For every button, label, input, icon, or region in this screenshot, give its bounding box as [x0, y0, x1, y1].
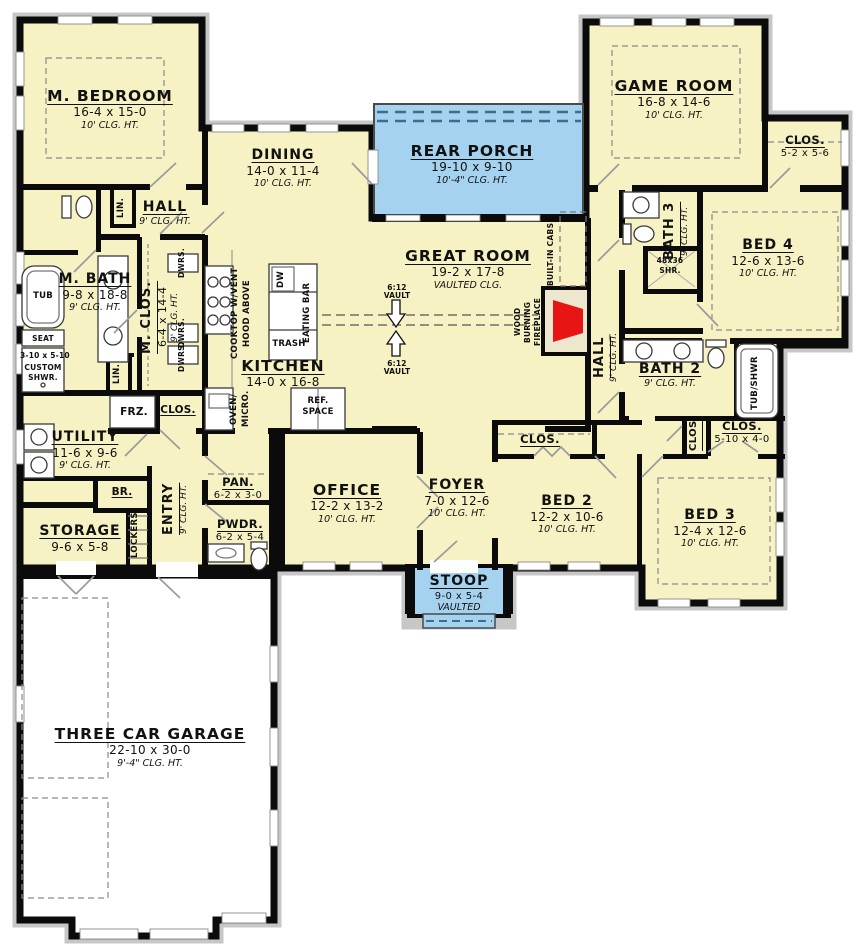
room-dims: 19-10 x 9-10 [392, 161, 552, 174]
room-dims: 5-2 x 5-6 [765, 148, 845, 159]
fireplace-label-3: FIREPLACE [533, 284, 542, 360]
drawers-label-3: DWRS. [177, 342, 186, 372]
room-label-m-clos: M. CLOS. [139, 258, 154, 376]
room-dims: 22-10 x 30-0 [50, 744, 250, 757]
room-name: BED 2 [497, 494, 637, 510]
room-name: DINING [213, 148, 353, 164]
room-label-powder: PWDR. 6-2 x 5-4 [198, 518, 282, 543]
room-ceiling-entry: 9' CLG. HT. [179, 470, 189, 548]
room-label-bed4: BED 4 12-6 x 13-6 10' CLG. HT. [698, 238, 838, 280]
tub-label: TUB [28, 291, 58, 301]
room-ceiling-hall-bed: 9' CLG. HT. [609, 324, 619, 390]
room-label-clos-hall: CLOS. [688, 410, 699, 458]
room-name: CLOS. [502, 433, 578, 446]
oven-micro-label-2: MICRO. [241, 384, 251, 434]
broom-label: BR. [100, 486, 144, 498]
room-ceiling: 10' CLG. HT. [30, 121, 190, 132]
room-ceiling: 10' CLG. HT. [594, 111, 754, 122]
room-name: REAR PORCH [392, 143, 552, 160]
closet-label-utility: CLOS. [150, 404, 206, 416]
room-name: FOYER [387, 478, 527, 494]
builtin-cabs-label: BUILT-IN CABS [546, 214, 555, 294]
room-label-dining: DINING 14-0 x 11-4 10' CLG. HT. [213, 148, 353, 190]
room-label-m-bedroom: M. BEDROOM 16-4 x 15-0 10' CLG. HT. [30, 88, 190, 131]
room-label-hall-upper: HALL 9' CLG. HT. [118, 200, 212, 227]
room-dims: 6-2 x 5-4 [198, 532, 282, 543]
room-name: GAME ROOM [594, 78, 754, 95]
room-name: BED 3 [640, 508, 780, 524]
room-label-entry: ENTRY [161, 466, 176, 552]
room-dims: 12-6 x 13-6 [698, 255, 838, 268]
room-ceiling: 10' CLG. HT. [213, 179, 353, 190]
room-label-bed2: BED 2 12-2 x 10-6 10' CLG. HT. [497, 494, 637, 536]
room-label-clos-game: CLOS. 5-2 x 5-6 [765, 134, 845, 159]
room-label-stoop: STOOP 9-0 x 5-4 VAULTED [400, 574, 518, 613]
cooktop-label-2: HOOD ABOVE [242, 266, 252, 361]
room-dims: 5-10 x 4-0 [700, 434, 784, 445]
room-label-pantry: PAN. 6-2 x 3-0 [198, 476, 278, 501]
room-ceiling: 9' CLG. HT. [608, 379, 732, 390]
room-dims: 14-0 x 11-4 [213, 165, 353, 178]
dishwasher-label: DW [276, 268, 286, 290]
room-label-utility: UTILITY 11-6 x 9-6 9' CLG. HT. [25, 430, 145, 472]
room-dims: 11-6 x 9-6 [25, 447, 145, 460]
room-ceiling-bath3: 9' CLG. HT. [680, 198, 690, 264]
room-ceiling: 9' CLG. HT. [25, 461, 145, 472]
room-ceiling: 10'-4" CLG. HT. [392, 176, 552, 187]
room-dims: 16-8 x 14-6 [594, 96, 754, 109]
room-name: STORAGE [18, 524, 142, 540]
room-name: GREAT ROOM [383, 248, 553, 265]
lockers-label: LOCKERS [130, 508, 140, 563]
room-name: CLOS. [765, 134, 845, 147]
room-name: PAN. [198, 476, 278, 489]
room-dims: 9-6 x 5-8 [18, 541, 142, 554]
room-dims: 12-2 x 10-6 [497, 511, 637, 524]
room-name: STOOP [400, 574, 518, 590]
room-name: PWDR. [198, 518, 282, 531]
room-label-garage: THREE CAR GARAGE 22-10 x 30-0 9'-4" CLG.… [50, 726, 250, 769]
room-label-rear-porch: REAR PORCH 19-10 x 9-10 10'-4" CLG. HT. [392, 143, 552, 186]
room-name: HALL [118, 200, 212, 216]
shower-label-2: SHR. [644, 266, 696, 275]
room-ceiling: VAULTED [400, 603, 518, 614]
room-ceiling: 10' CLG. HT. [698, 269, 838, 280]
room-ceiling: 10' CLG. HT. [497, 525, 637, 536]
linen-label-mbath: LIN. [112, 357, 122, 391]
ref-space-label-1: REF. [295, 396, 341, 406]
room-label-bed3: BED 3 12-4 x 12-6 10' CLG. HT. [640, 508, 780, 550]
room-dims: 9-0 x 5-4 [400, 591, 518, 602]
vault-label-bottom-2: VAULT [380, 367, 414, 376]
custom-shower-dims: 3-10 x 5-10 [20, 351, 66, 360]
room-label-hall-bed: HALL [592, 320, 607, 394]
tub-shwr-label: TUB/SHWR [750, 348, 760, 418]
room-name: M. BEDROOM [30, 88, 190, 105]
room-name: UTILITY [25, 430, 145, 446]
room-name: CLOS. [700, 420, 784, 433]
room-label-game-room: GAME ROOM 16-8 x 14-6 10' CLG. HT. [594, 78, 754, 121]
room-dims: 16-4 x 15-0 [30, 106, 190, 119]
vault-label-top-2: VAULT [380, 291, 414, 300]
oven-micro-label-1: OVEN/ [229, 386, 239, 432]
shower-label-1: 48x36 [644, 256, 696, 265]
ref-space-label-2: SPACE [295, 407, 341, 417]
room-name: THREE CAR GARAGE [50, 726, 250, 743]
linen-label-hall: LIN. [116, 192, 126, 224]
room-label-storage: STORAGE 9-6 x 5-8 [18, 524, 142, 554]
room-label-clos-bed3: CLOS. 5-10 x 4-0 [700, 420, 784, 445]
room-dims: 19-2 x 17-8 [383, 266, 553, 279]
drawers-label-1: DWRS. [177, 248, 186, 278]
room-label-clos-bed2: CLOS. [502, 433, 578, 446]
room-ceiling: 9' CLG. HT. [118, 217, 212, 228]
fireplace-label-2: BURNING [523, 288, 532, 356]
room-name: BATH 2 [608, 362, 732, 378]
floor-plan: M. BEDROOM 16-4 x 15-0 10' CLG. HT. DINI… [0, 0, 858, 950]
room-ceiling: 10' CLG. HT. [640, 539, 780, 550]
room-label-bath2: BATH 2 9' CLG. HT. [608, 362, 732, 389]
room-dims-m-clos: 6-4 x 14-4 [156, 262, 169, 372]
fireplace-label-1: WOOD [513, 292, 522, 352]
room-dims: 12-4 x 12-6 [640, 525, 780, 538]
room-ceiling: 9'-4" CLG. HT. [50, 759, 250, 770]
custom-shower-label-2: SHWR. [20, 373, 66, 382]
custom-shower-label-1: CUSTOM [20, 363, 66, 372]
seat-label: SEAT [24, 334, 62, 343]
room-name: BED 4 [698, 238, 838, 254]
cooktop-label-1: COOKTOP W/VENT [230, 258, 240, 368]
room-dims: 6-2 x 3-0 [198, 490, 278, 501]
eating-bar-label: EATING BAR [302, 272, 312, 354]
